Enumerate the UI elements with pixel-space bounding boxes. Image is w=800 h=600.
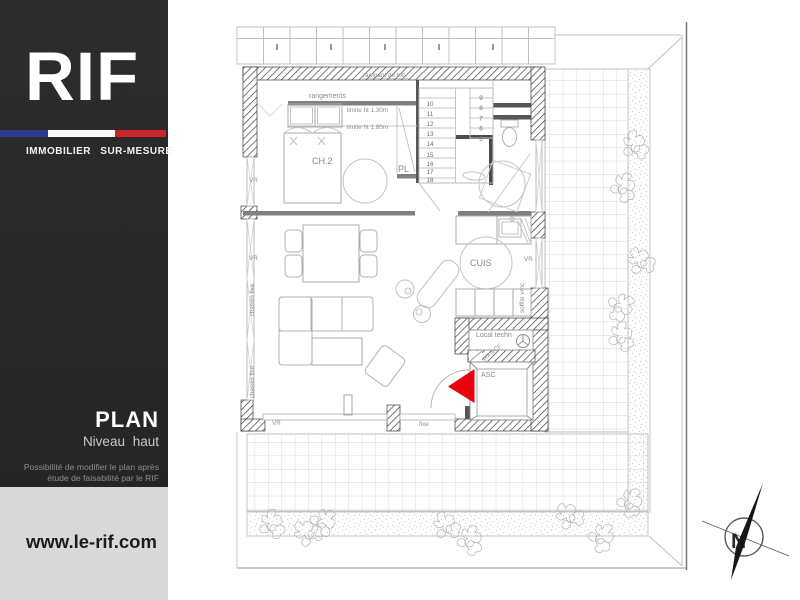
floor-plan-svg: 10 11 12 13 14 15 16 17 18 9 8 7 6 5 — [170, 0, 800, 600]
label-vr-right: VR — [524, 256, 533, 263]
label-soffite-vmc: soffite vmc — [519, 283, 526, 313]
roof-windows — [237, 27, 555, 64]
room-label-pl: PL — [398, 164, 409, 174]
room-label-ch2: CH.2 — [312, 156, 333, 166]
stair-step-number: 6 — [479, 126, 483, 133]
living-room-furniture — [279, 225, 463, 415]
stair-step-number: 18 — [426, 177, 434, 184]
stair-step-number: 11 — [427, 111, 434, 118]
stair-step-number: 8 — [479, 105, 483, 112]
stair-step-number: 5 — [479, 136, 483, 143]
stair-step-number: 15 — [426, 152, 434, 159]
rif-logo: RIF — [25, 42, 139, 111]
stair-step-number: 17 — [426, 169, 434, 176]
flag-red — [115, 130, 166, 137]
room-label-asc: ASC — [481, 372, 495, 379]
note-line-1: Possibilité de modifier le plan après — [24, 462, 159, 473]
stair-step-number: 16 — [426, 161, 434, 168]
website-text: www.le-rif.com — [26, 531, 157, 553]
label-rampant-de-toit: rampant de toit — [363, 72, 405, 79]
compass: N — [702, 483, 789, 580]
label-vr-left-2: VR — [249, 255, 258, 262]
note-line-2: étude de faisabilité par le RIF — [24, 473, 159, 484]
label-vr-left-1: VR — [249, 177, 258, 184]
room-label-cuis: CUIS — [470, 258, 492, 268]
plan-labels: rampant de toit rangements limite ht 1.3… — [249, 72, 533, 428]
label-chassis-fixe-2: chassis fixe — [249, 365, 256, 398]
stair-step-number: 7 — [479, 116, 483, 123]
bedroom-furniture — [284, 104, 387, 203]
stair-step-number: 12 — [426, 121, 434, 128]
plan-title: PLAN — [24, 407, 159, 433]
tagline: IMMOBILIER SUR-MESURE — [26, 146, 173, 157]
flag-blue — [0, 130, 48, 137]
label-limite-180: limite ht 1.80m — [347, 124, 388, 131]
label-rangements: rangements — [309, 93, 346, 100]
plan-subtitle: Niveau haut — [24, 434, 159, 449]
label-vr-bottom: VR — [272, 420, 281, 427]
label-fixe: fixe — [419, 421, 429, 428]
stair-step-number: 14 — [426, 141, 434, 148]
entrance-door — [431, 369, 475, 408]
sidebar: RIF IMMOBILIER SUR-MESURE PLAN Niveau ha… — [0, 0, 168, 600]
flag-white — [48, 130, 115, 137]
stair-step-number: 10 — [426, 101, 434, 108]
elevator — [470, 362, 533, 420]
plan-heading-block: PLAN Niveau haut Possibilité de modifier… — [24, 407, 159, 484]
label-chassis-fixe-1: chassis fixe — [249, 283, 256, 316]
stair-step-number: 9 — [479, 95, 483, 102]
label-limite-130: limite ht 1.30m — [347, 107, 388, 114]
feasibility-note: Possibilité de modifier le plan après ét… — [24, 462, 159, 484]
bathroom-fixtures — [479, 120, 531, 212]
room-label-local-techn: Local techn — [476, 332, 512, 339]
stair-step-number: 13 — [426, 131, 434, 138]
french-flag-bar — [0, 130, 166, 137]
terrace-tiles — [247, 69, 648, 511]
